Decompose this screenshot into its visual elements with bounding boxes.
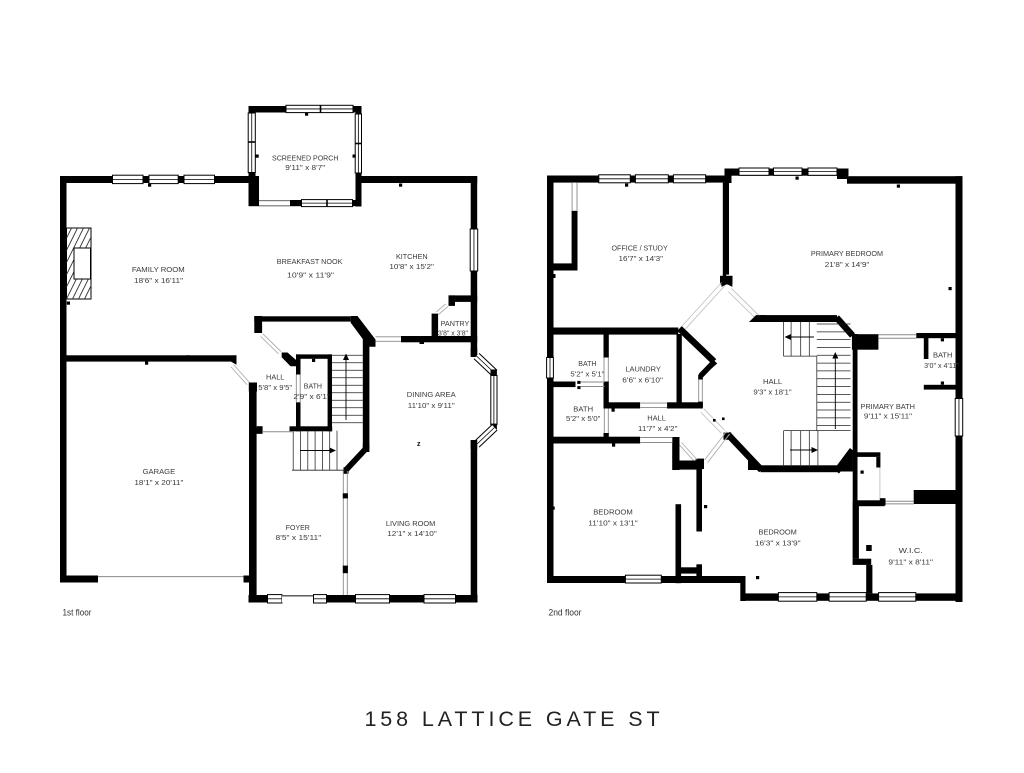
svg-text:PRIMARY BATH: PRIMARY BATH	[860, 402, 915, 411]
svg-text:OFFICE / STUDY: OFFICE / STUDY	[612, 244, 668, 253]
svg-text:21'8" x 14'9": 21'8" x 14'9"	[825, 260, 870, 269]
svg-text:1st floor: 1st floor	[63, 608, 92, 618]
svg-text:3'8" x 3'8": 3'8" x 3'8"	[438, 329, 468, 338]
svg-text:FOYER: FOYER	[286, 523, 311, 532]
svg-text:BATH: BATH	[933, 351, 953, 360]
svg-text:2'9" x 6'1": 2'9" x 6'1"	[293, 392, 330, 401]
svg-text:BATH: BATH	[578, 359, 596, 368]
svg-text:5'2" x 5'1": 5'2" x 5'1"	[570, 370, 604, 379]
svg-text:9'11" x 8'11": 9'11" x 8'11"	[888, 558, 933, 567]
svg-text:3'0" x 4'11": 3'0" x 4'11"	[924, 361, 959, 370]
svg-text:LAUNDRY: LAUNDRY	[625, 365, 660, 374]
svg-text:KITCHEN: KITCHEN	[396, 252, 428, 261]
svg-text:2nd floor: 2nd floor	[549, 608, 582, 618]
svg-text:12'1" x 14'10": 12'1" x 14'10"	[387, 529, 437, 538]
svg-text:16'7" x 14'3": 16'7" x 14'3"	[619, 254, 664, 263]
svg-text:5'2" x 5'0": 5'2" x 5'0"	[566, 414, 601, 423]
svg-text:W.I.C.: W.I.C.	[899, 546, 923, 555]
svg-text:18'1" x 20'11": 18'1" x 20'11"	[134, 478, 183, 487]
svg-text:6'6" x 6'10": 6'6" x 6'10"	[622, 376, 663, 385]
svg-text:18'6" x 16'11": 18'6" x 16'11"	[134, 276, 183, 285]
svg-text:GARAGE: GARAGE	[143, 467, 176, 476]
svg-text:HALL: HALL	[266, 373, 285, 382]
svg-text:PANTRY: PANTRY	[441, 319, 470, 328]
svg-text:z: z	[417, 441, 421, 448]
svg-text:DINING AREA: DINING AREA	[407, 390, 457, 399]
svg-text:11'10" x 9'11": 11'10" x 9'11"	[408, 401, 455, 410]
svg-text:FAMILY ROOM: FAMILY ROOM	[132, 265, 185, 274]
svg-text:BATH: BATH	[304, 382, 322, 391]
svg-text:LIVING ROOM: LIVING ROOM	[386, 519, 436, 528]
svg-text:PRIMARY BEDROOM: PRIMARY BEDROOM	[811, 249, 883, 258]
svg-text:BEDROOM: BEDROOM	[759, 528, 797, 537]
svg-text:HALL: HALL	[647, 414, 666, 423]
svg-text:11'7" x 4'2": 11'7" x 4'2"	[638, 424, 678, 433]
svg-text:5'8" x 9'5": 5'8" x 9'5"	[258, 383, 292, 392]
svg-text:8'5" x 15'11": 8'5" x 15'11"	[276, 533, 322, 542]
svg-text:SCREENED PORCH: SCREENED PORCH	[272, 154, 338, 163]
svg-text:9'11" x 15'11": 9'11" x 15'11"	[864, 412, 912, 421]
svg-text:BREAKFAST NOOK: BREAKFAST NOOK	[277, 257, 343, 266]
svg-text:16'3" x 13'9": 16'3" x 13'9"	[755, 539, 801, 548]
svg-text:158 LATTICE GATE ST: 158 LATTICE GATE ST	[364, 707, 663, 731]
svg-text:BATH: BATH	[573, 405, 593, 414]
svg-text:11'10" x 13'1": 11'10" x 13'1"	[588, 519, 638, 528]
svg-text:BEDROOM: BEDROOM	[593, 508, 633, 517]
svg-text:10'8" x 15'2": 10'8" x 15'2"	[389, 262, 434, 271]
svg-text:HALL: HALL	[763, 377, 783, 386]
svg-text:9'11" x 8'7": 9'11" x 8'7"	[285, 163, 325, 172]
svg-text:9'3" x 18'1": 9'3" x 18'1"	[753, 388, 792, 397]
svg-text:10'9" x 11'9": 10'9" x 11'9"	[287, 271, 334, 280]
